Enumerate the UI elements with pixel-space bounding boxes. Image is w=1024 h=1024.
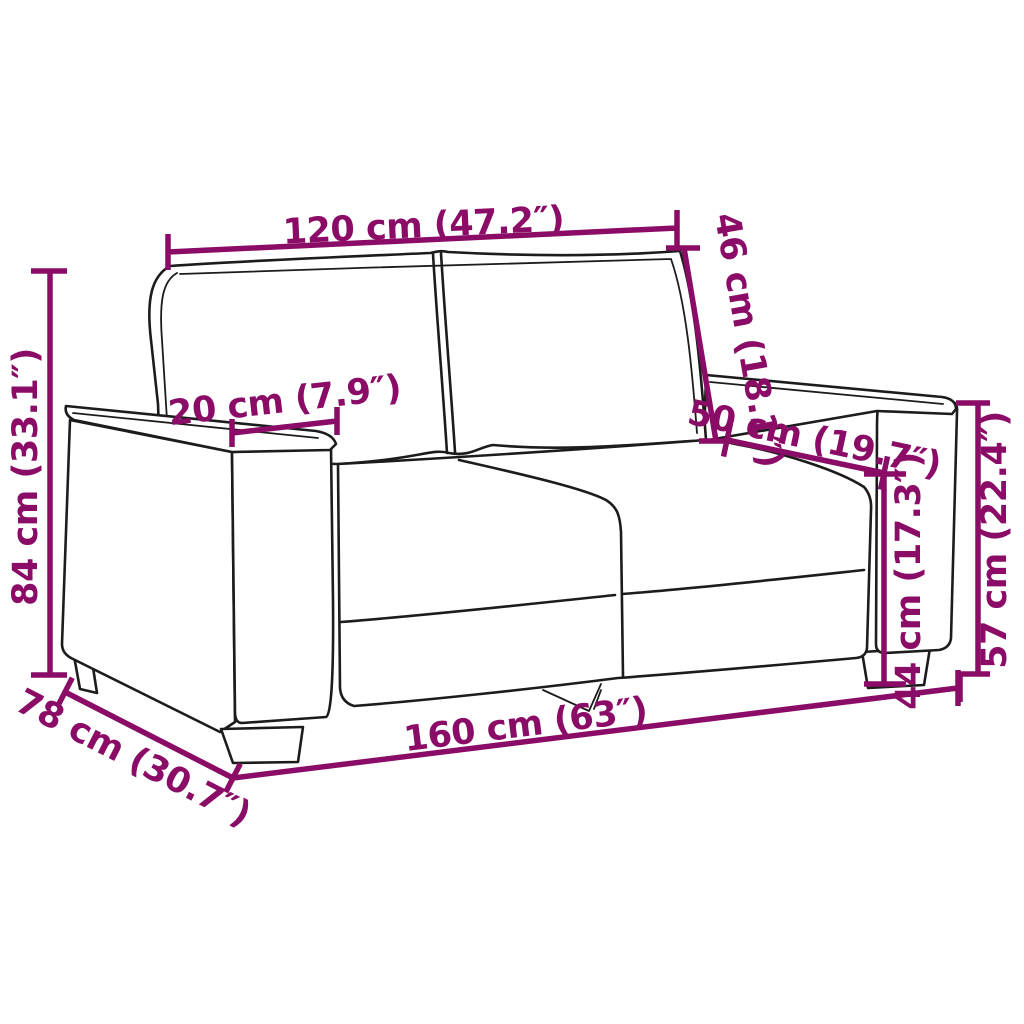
total-width-label: 160 cm (63″) — [402, 690, 650, 760]
sofa-drawing — [62, 251, 957, 763]
sofa-left-front-foot — [221, 727, 303, 763]
armrest-height-label: 57 cm (22.4″) — [975, 411, 1015, 669]
seat-height-label: 44 cm (17.3″) — [889, 452, 929, 710]
diagram-canvas: 120 cm (47.2″) 46 cm (18.1″) 20 cm (7.9″… — [0, 0, 1024, 1024]
sofa-left-armrest-front — [232, 448, 333, 723]
total-height-label: 84 cm (33.1″) — [6, 348, 46, 606]
dimension-armrest-height: 57 cm (22.4″) — [956, 403, 1015, 702]
dimension-total-height: 84 cm (33.1″) — [6, 271, 67, 675]
back-width-label: 120 cm (47.2″) — [282, 199, 565, 252]
sofa-seat-body — [338, 440, 871, 706]
dimension-diagram: 120 cm (47.2″) 46 cm (18.1″) 20 cm (7.9″… — [0, 0, 1024, 1024]
